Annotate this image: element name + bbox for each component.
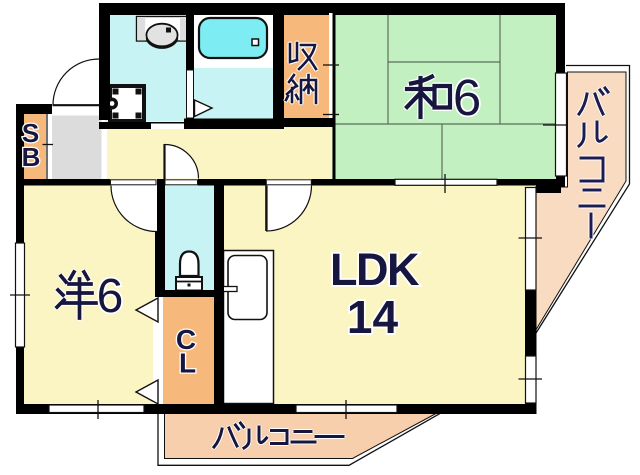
svg-text:6: 6	[453, 69, 481, 126]
svg-text:B: B	[22, 142, 41, 172]
svg-text:LDK: LDK	[330, 244, 420, 295]
svg-text:14: 14	[347, 291, 399, 343]
svg-text:6: 6	[97, 270, 124, 323]
svg-text:L: L	[179, 348, 196, 379]
